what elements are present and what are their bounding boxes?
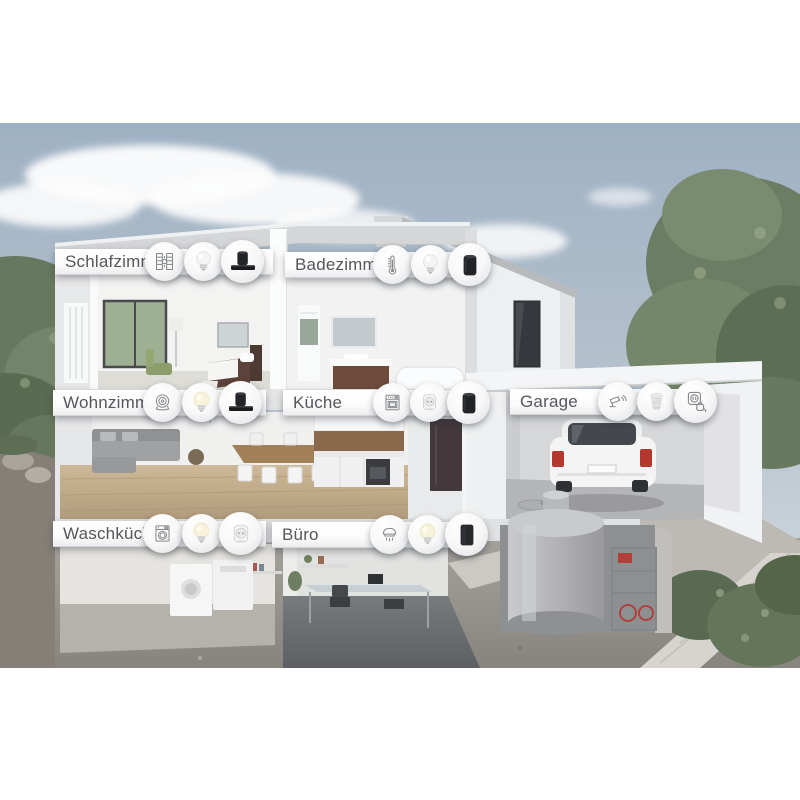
speaker-soundbar-icon (221, 240, 264, 283)
box-speaker-icon (445, 513, 488, 556)
room-label-schlafzimmer: Schlafzimmer (55, 249, 273, 274)
speaker-rings-icon (143, 383, 182, 422)
dark-window (514, 301, 540, 367)
hallway (408, 412, 470, 522)
thermometer-icon (373, 245, 412, 284)
oven-icon (373, 383, 412, 422)
room-label-text: Küche (283, 393, 342, 413)
smart-speaker-icon (447, 381, 490, 424)
smoke-detector-icon (370, 515, 409, 554)
room-label-garage: Garage (510, 389, 704, 414)
speaker-soundbar-icon (219, 381, 262, 424)
room-label-buero: Büro (272, 522, 473, 547)
room-label-text: Büro (272, 525, 319, 545)
kitchen-interior (314, 415, 404, 487)
room-label-wohnzimmer: Wohnzimmer (53, 390, 266, 415)
smart-speaker-icon (448, 243, 491, 286)
spot-bulb-icon (637, 382, 676, 421)
smart-plug-icon (410, 383, 449, 422)
smart-plug-icon (219, 512, 262, 555)
room-label-waschkueche: Waschküche (53, 521, 266, 546)
white-bulb-icon (411, 245, 450, 284)
washing-machine-icon (143, 514, 182, 553)
room-label-kueche: Küche (283, 390, 474, 415)
room-label-text: Garage (510, 392, 578, 412)
security-camera-icon (598, 382, 637, 421)
glow-bulb-icon (408, 515, 447, 554)
room-label-badezimmer: Badezimmer (285, 252, 482, 277)
laundry-room-interior (60, 544, 282, 653)
white-bulb-icon (184, 242, 223, 281)
glow-bulb-icon (182, 383, 221, 422)
washing-machines (170, 560, 253, 616)
roller-shutter-icon (145, 242, 184, 281)
glow-bulb-icon (182, 514, 221, 553)
socket-plug-icon (674, 380, 717, 423)
